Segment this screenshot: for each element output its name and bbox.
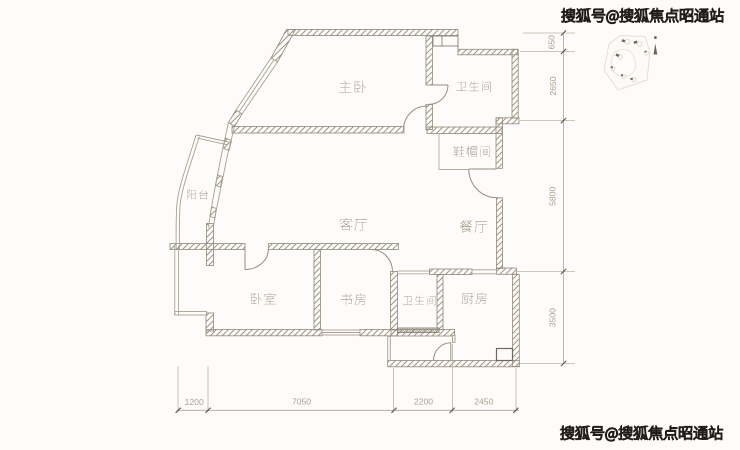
svg-text:7050: 7050	[292, 397, 311, 407]
svg-text:2450: 2450	[474, 397, 493, 407]
svg-text:5800: 5800	[548, 187, 558, 206]
svg-text:1200: 1200	[185, 397, 204, 407]
svg-text:2650: 2650	[548, 76, 558, 95]
svg-text:650: 650	[547, 35, 557, 50]
svg-text:2200: 2200	[414, 397, 433, 407]
svg-text:3500: 3500	[547, 308, 557, 327]
